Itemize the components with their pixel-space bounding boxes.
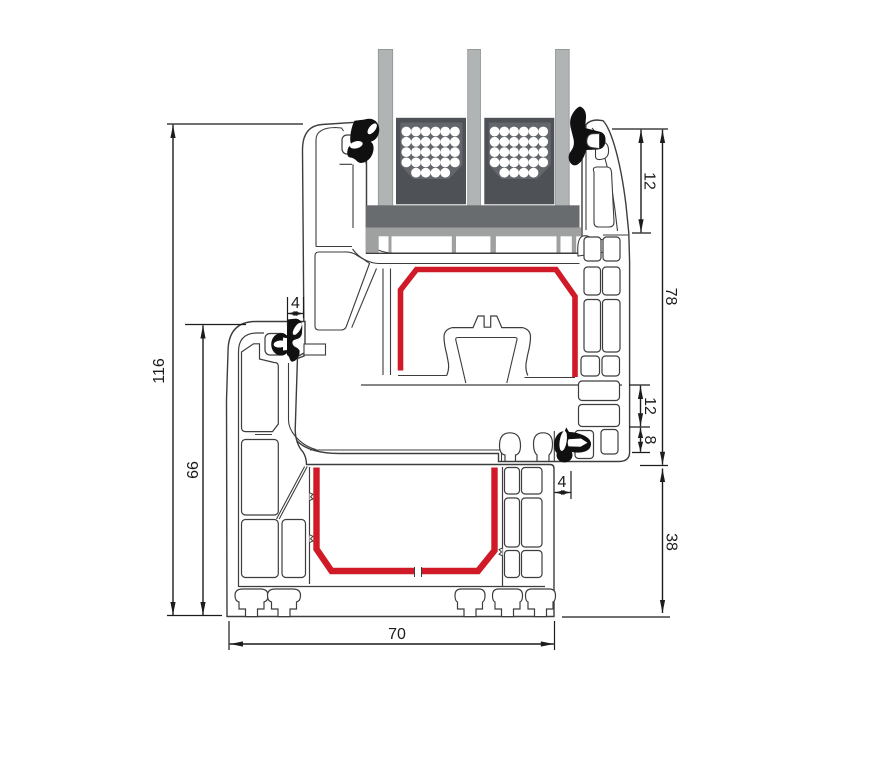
svg-text:78: 78 bbox=[662, 288, 679, 306]
svg-text:116: 116 bbox=[151, 358, 168, 384]
svg-text:4: 4 bbox=[558, 474, 567, 491]
svg-text:70: 70 bbox=[388, 626, 406, 643]
svg-text:66: 66 bbox=[185, 461, 202, 479]
svg-text:38: 38 bbox=[662, 533, 679, 551]
svg-text:12: 12 bbox=[640, 172, 657, 190]
svg-text:8: 8 bbox=[641, 436, 658, 445]
svg-text:12: 12 bbox=[641, 397, 658, 415]
svg-text:4: 4 bbox=[291, 295, 300, 312]
